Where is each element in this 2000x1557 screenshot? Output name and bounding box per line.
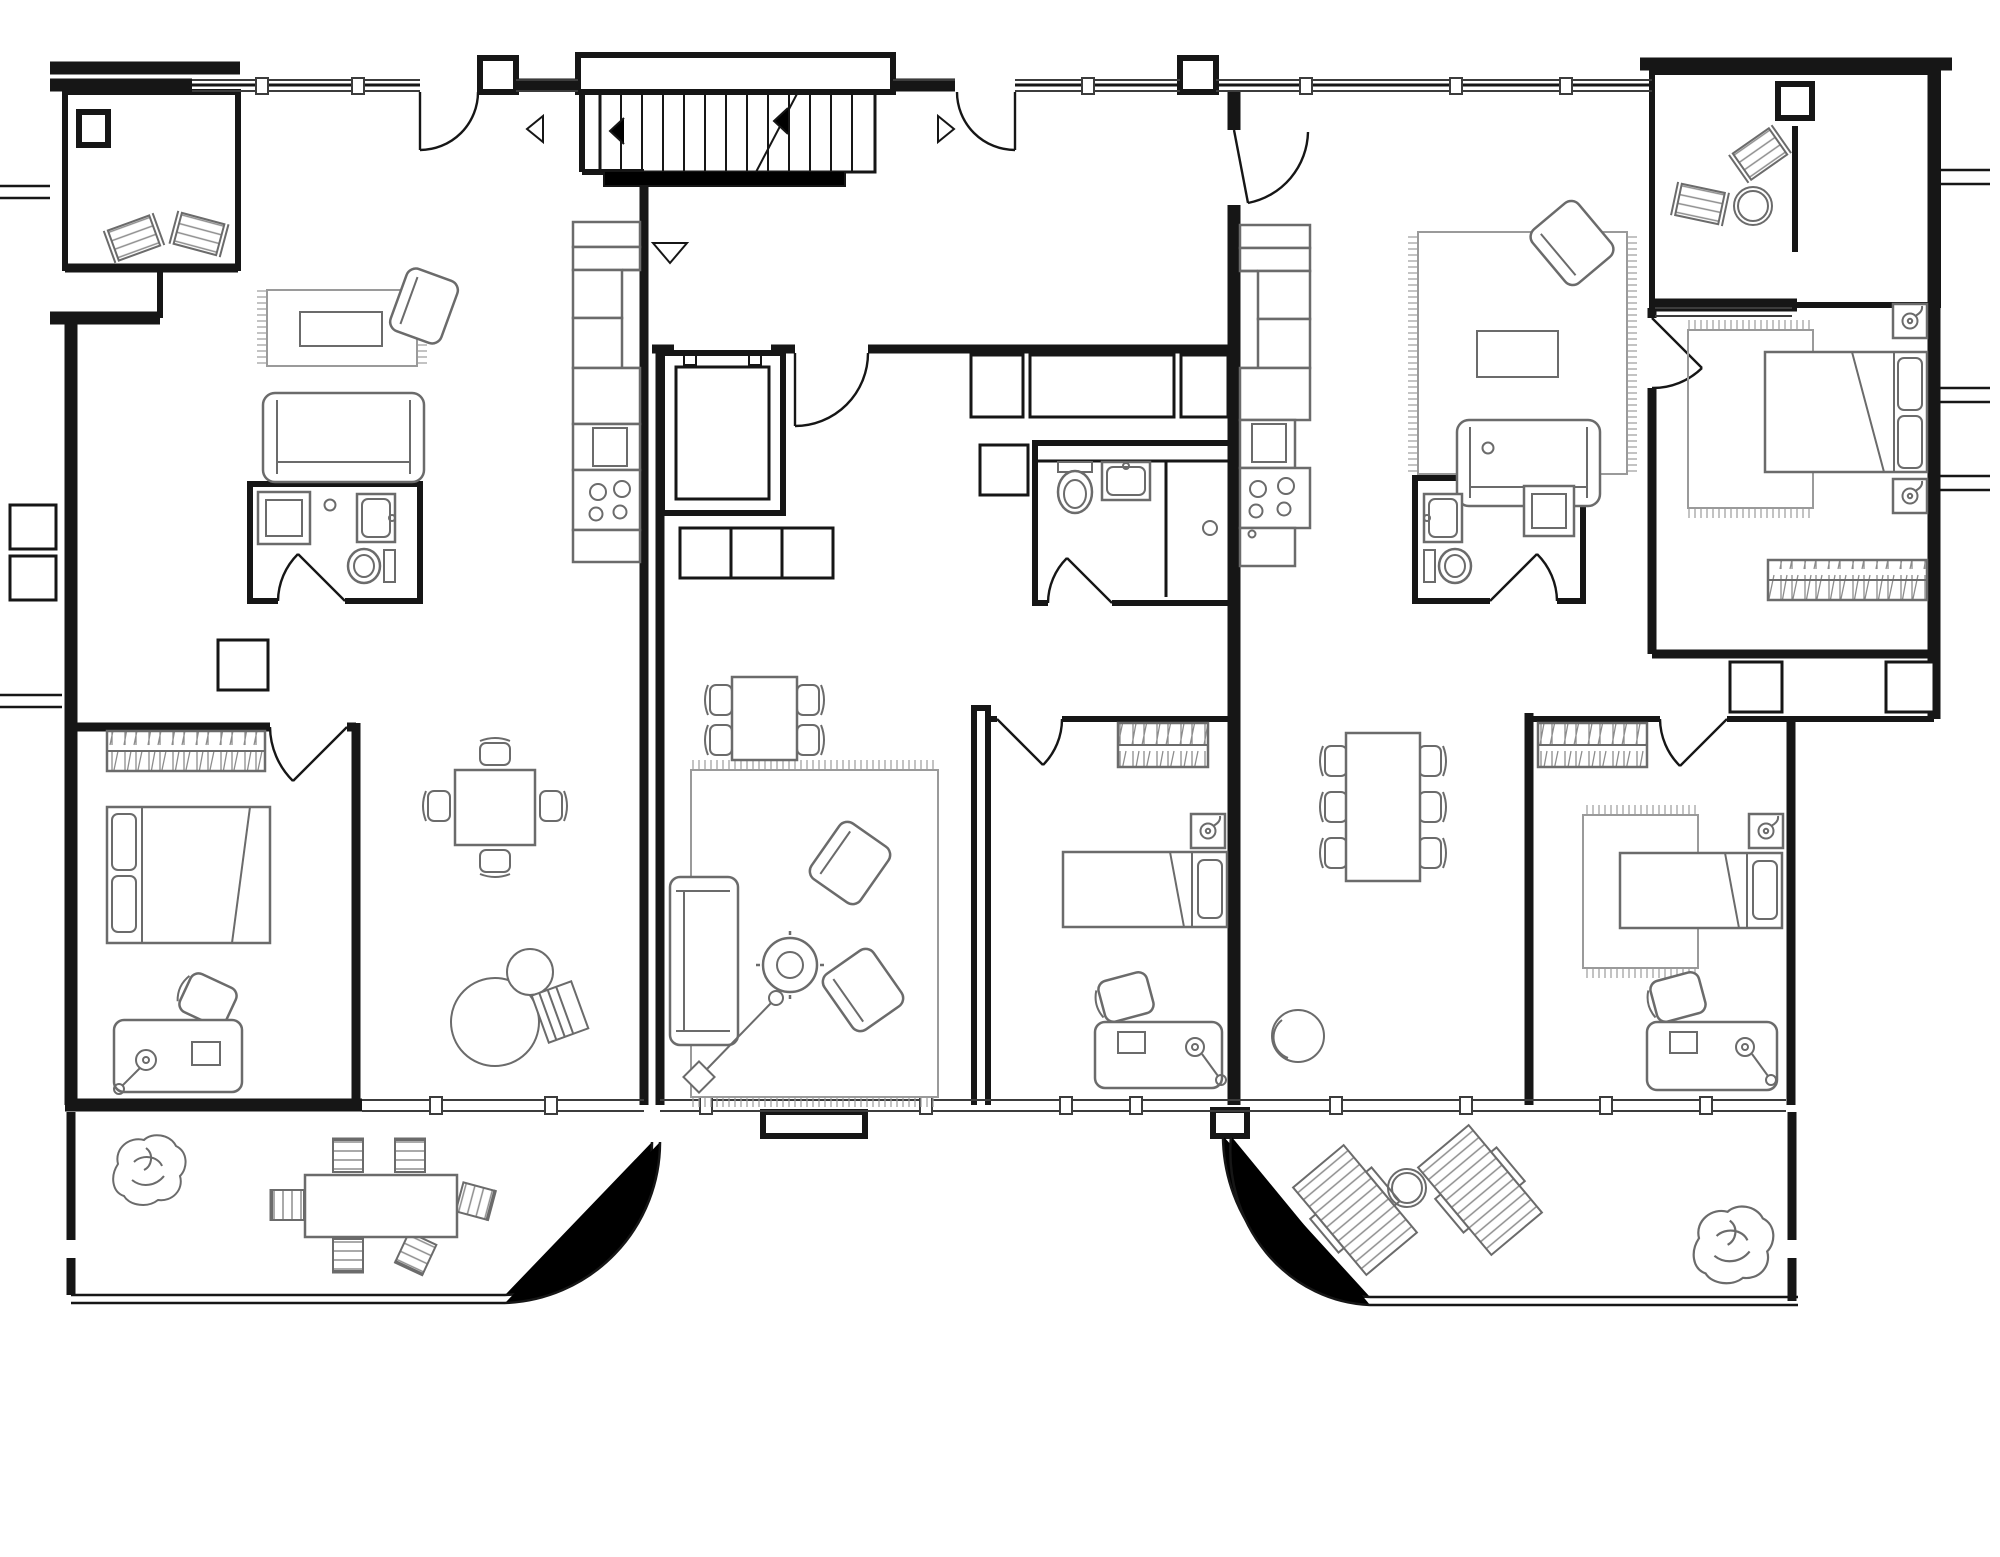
dining-right <box>1320 733 1446 881</box>
terrace-pier-right <box>1213 1110 1247 1136</box>
washing-machine <box>980 445 1028 495</box>
toilet <box>1058 462 1092 513</box>
kitchen-sink-cabinet <box>573 424 640 470</box>
facade-column <box>1180 58 1216 92</box>
dining-table <box>732 677 797 760</box>
dining-table <box>1346 733 1420 881</box>
stair-landing <box>604 172 845 186</box>
terrace-chair <box>332 1139 364 1172</box>
terrace-table <box>305 1175 457 1237</box>
terrace-chair <box>394 1139 426 1172</box>
floor-plan-page <box>0 0 2000 1557</box>
balcony-column <box>1778 84 1812 118</box>
bathroom-sink <box>1102 462 1150 500</box>
stair-landing-block <box>578 55 893 92</box>
desk <box>114 1020 242 1092</box>
nightstand-with-lamp <box>1749 814 1783 848</box>
single-bed <box>1063 852 1227 927</box>
terrace-chair <box>332 1239 364 1272</box>
single-bed2 <box>1620 853 1782 928</box>
ball-side-table <box>507 949 553 995</box>
storage-cabinet-row <box>971 355 1228 417</box>
bathroom-sink <box>357 494 395 542</box>
coffee-table <box>1477 331 1558 377</box>
floor-plan-canvas <box>0 0 2000 1557</box>
elevator <box>662 353 783 513</box>
hall-storage-cube <box>218 640 268 690</box>
nightstand-with-lamp <box>1191 814 1225 848</box>
cooktop <box>573 470 640 530</box>
balcony-round-table <box>1734 187 1772 225</box>
terrace-chair <box>271 1189 304 1221</box>
nightstand-with-lamp <box>1893 304 1927 338</box>
terrace-pier-center <box>763 1112 865 1136</box>
bathroom-sink <box>1424 494 1462 542</box>
paper-background <box>0 0 2000 1557</box>
nightstand-with-lamp <box>1893 479 1927 513</box>
coffee-table <box>300 312 382 346</box>
facade-column <box>480 58 516 92</box>
cooktop <box>1240 468 1310 528</box>
double-bed <box>107 807 270 943</box>
toilet <box>1424 549 1471 583</box>
double-bed-master <box>1765 352 1927 472</box>
sofa <box>263 393 424 482</box>
desk <box>1647 1022 1777 1090</box>
storage-lockers <box>680 528 833 578</box>
balcony-column <box>79 112 108 145</box>
toilet <box>348 549 395 583</box>
dining-table <box>455 770 535 845</box>
sofa-center <box>670 877 738 1045</box>
